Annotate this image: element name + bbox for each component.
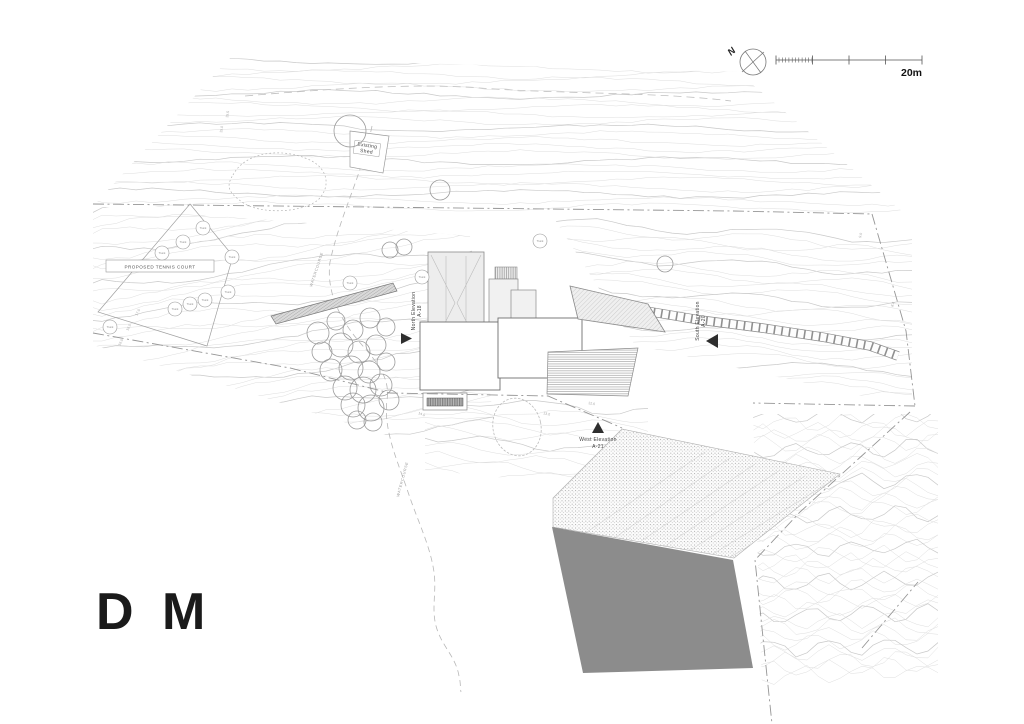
contour-elevation-value: 15.0 [219, 126, 224, 134]
contour-line [552, 219, 912, 243]
contour-line [752, 631, 939, 650]
trunk-marker: Trunk [196, 221, 210, 235]
trunk-label: Trunk [537, 239, 544, 243]
existing-shed: Existing Shed [350, 131, 389, 173]
contour-line [88, 417, 494, 462]
west-elevation-ref: A-21 [592, 444, 604, 450]
contour-elevation-value: 15.5 [225, 111, 230, 119]
contour-line [88, 188, 904, 199]
trunk-marker: Trunk [533, 234, 547, 248]
contour-field [88, 56, 904, 213]
trunk-label: Trunk [229, 255, 236, 259]
contour-line [88, 102, 904, 113]
boundary-top [93, 204, 872, 214]
contour-line [88, 201, 904, 212]
contour-line [88, 417, 494, 453]
contour-line [88, 83, 904, 92]
trunk-label: Trunk [347, 281, 354, 285]
trunk-label: Trunk [187, 302, 194, 306]
dashed-service-line [245, 86, 731, 101]
trunk-marker: Trunk [176, 235, 190, 249]
trunk-label: Trunk [107, 325, 114, 329]
contour-line [752, 604, 939, 622]
contour-line [552, 261, 912, 282]
trunk-marker: Trunk [168, 302, 182, 316]
tree-canopy-icon [377, 318, 395, 336]
scale-bar: 20m [776, 56, 922, 80]
contour-line [752, 519, 939, 537]
contour-elevation-value: 16.0 [117, 338, 124, 346]
contour-line [752, 539, 939, 556]
contour-elevation-value: 17.0 [134, 308, 141, 316]
tree-canopy-icon [364, 413, 382, 431]
site-plan: PROPOSED TENNIS COURT Existing Shed [0, 0, 1024, 724]
contour-line [88, 200, 494, 236]
contour-elevation-value: 9.0 [858, 232, 863, 238]
contour-line [88, 168, 904, 179]
tree-canopy-icon [377, 353, 395, 371]
contour-line [88, 116, 904, 127]
contour-field [752, 407, 939, 685]
contour-line [88, 110, 904, 118]
contour-line [88, 149, 904, 160]
contour-line [88, 70, 904, 80]
contour-line [752, 525, 939, 542]
tree-canopy-icon [329, 333, 353, 357]
trunk-label: Trunk [202, 298, 209, 302]
boundary-corner [862, 582, 918, 648]
tree-canopy-icon [348, 411, 366, 429]
south-elevation-ref: A-20 [701, 315, 707, 327]
trunk-marker: Trunk [183, 297, 197, 311]
contour-line [752, 414, 939, 430]
trunk-marker: Trunk [221, 285, 235, 299]
contour-line [88, 135, 904, 146]
contour-line [752, 545, 939, 562]
tree-canopy-icon [348, 341, 370, 363]
contour-line [752, 434, 939, 451]
contour-line [752, 618, 939, 635]
west-elevation-arrow-icon [592, 422, 604, 433]
south-elevation-arrow-icon [706, 334, 718, 348]
contour-line [88, 186, 494, 222]
contour-line [88, 122, 904, 133]
contour-line [752, 586, 939, 605]
contour-line [752, 439, 939, 457]
stair-comb [495, 267, 517, 279]
contour-line [752, 594, 939, 609]
contour-line [88, 56, 904, 67]
trunk-label: Trunk [159, 251, 166, 255]
contour-line [752, 625, 939, 641]
contour-elevation-value: 13.0 [543, 411, 551, 417]
dma-logo: D M _ A [96, 462, 212, 724]
trunk-marker: Trunk [225, 250, 239, 264]
contour-line [752, 652, 939, 669]
trunk-marker: Trunk [343, 276, 357, 290]
contour-line [752, 571, 939, 590]
contour-line [552, 394, 912, 413]
boundary-east [753, 403, 915, 406]
trunk-marker: Trunk [198, 293, 212, 307]
tree-canopy-icon [343, 320, 363, 340]
lower-terrace-steps [427, 398, 463, 406]
trunk-marker: Trunk [155, 246, 169, 260]
west-elevation-label: West Elevation [579, 437, 616, 443]
contour-line [88, 90, 904, 101]
contour-elevation-value: 12.6 [588, 401, 596, 406]
contour-line [88, 62, 904, 73]
trunk-marker: Trunk [415, 270, 429, 284]
contour-line [752, 534, 939, 550]
contour-elevation-value: 14.0 [418, 411, 426, 417]
main-house-west [420, 322, 500, 390]
tree-canopy-icon [430, 180, 450, 200]
contour-line [752, 420, 939, 438]
boundary-southeast [755, 412, 910, 724]
contour-line [424, 412, 648, 431]
building-footprint [420, 252, 665, 410]
contour-line [552, 398, 912, 423]
north-elevation-ref: A-18 [417, 305, 423, 317]
contour-line [88, 195, 904, 206]
contour-line [552, 252, 912, 275]
contour-line [88, 142, 904, 153]
scale-bar-label: 20m [901, 67, 922, 79]
tree-canopy-icon [382, 242, 398, 258]
tennis-court-label: PROPOSED TENNIS COURT [124, 265, 195, 270]
trunk-label: Trunk [172, 307, 179, 311]
contour-line [88, 210, 494, 250]
trunk-label: Trunk [180, 240, 187, 244]
logo-line1: D M [96, 582, 212, 642]
contour-line [752, 665, 939, 684]
watercourse-label-lower: WATERCOURSE [396, 461, 409, 497]
north-letter: N [726, 45, 739, 59]
contour-line [88, 162, 904, 173]
contour-line [752, 658, 939, 676]
bush-outline [487, 394, 546, 461]
contour-line [752, 579, 939, 597]
north-arrow: N [726, 45, 766, 75]
trunk-label: Trunk [225, 290, 232, 294]
north-arrow-cross-icon [742, 51, 764, 73]
trunk-label: Trunk [419, 275, 426, 279]
contour-line [88, 129, 904, 140]
trunk-label: Trunk [200, 226, 207, 230]
trunk-marker: Trunk [103, 320, 117, 334]
boundary-right [872, 214, 915, 406]
deck-stripes [547, 348, 638, 396]
